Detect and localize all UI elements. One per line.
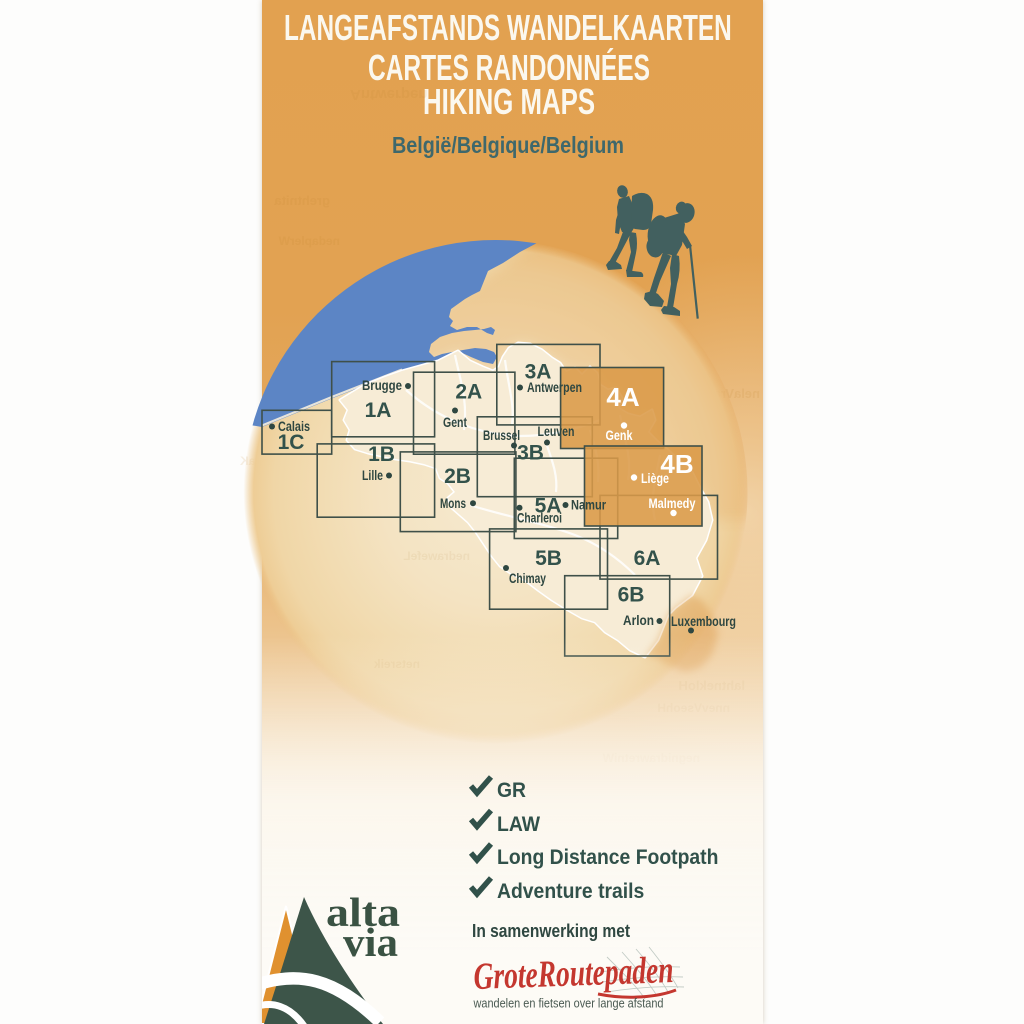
svg-text:wandelen en fietsen over lange: wandelen en fietsen over lange afstand — [473, 997, 664, 1011]
svg-text:GroteRoutepaden: GroteRoutepaden — [473, 949, 674, 998]
svg-text:via: via — [343, 919, 398, 965]
